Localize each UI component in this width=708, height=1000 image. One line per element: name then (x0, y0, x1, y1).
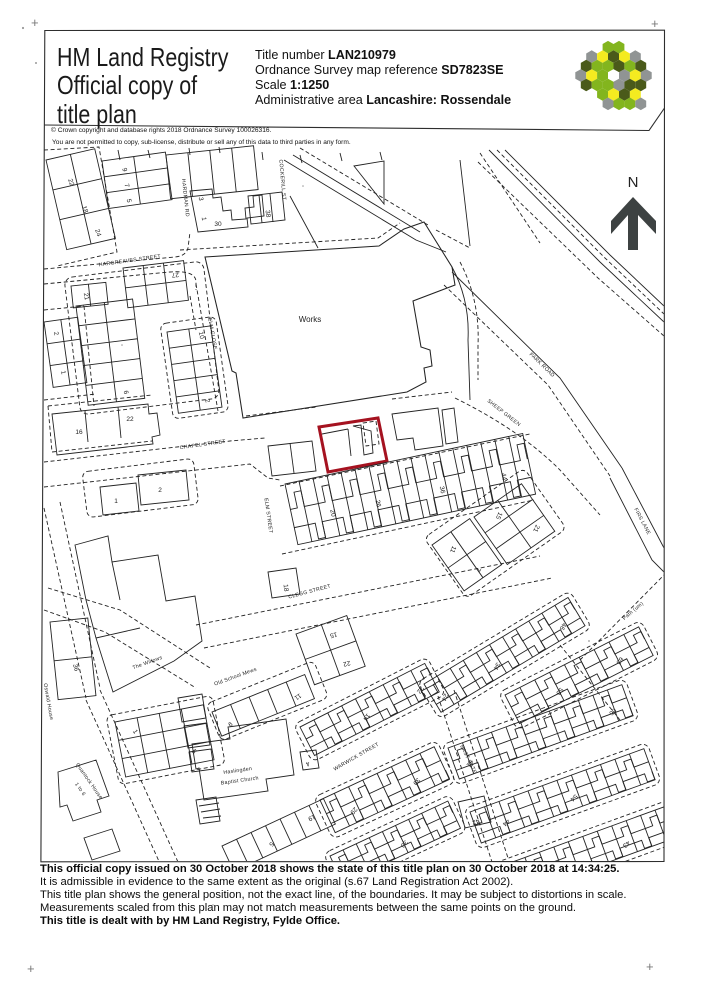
svg-text:21: 21 (82, 292, 90, 301)
svg-text:44: 44 (501, 817, 511, 827)
svg-text:9: 9 (120, 167, 128, 172)
svg-text:COCKERILL ST: COCKERILL ST (277, 159, 287, 201)
svg-text:22: 22 (126, 416, 134, 423)
svg-text:1: 1 (200, 217, 207, 222)
svg-text:Baptist Church: Baptist Church (221, 775, 260, 786)
svg-text:7: 7 (123, 183, 131, 188)
svg-text:1: 1 (59, 370, 67, 375)
svg-text:1: 1 (114, 498, 118, 505)
svg-text:6: 6 (122, 390, 130, 395)
svg-text:34: 34 (491, 661, 501, 671)
svg-text:46: 46 (558, 621, 568, 631)
svg-text:22: 22 (66, 178, 75, 187)
svg-text:1: 1 (131, 729, 139, 736)
svg-text:16: 16 (75, 429, 83, 436)
svg-text:2: 2 (203, 398, 211, 403)
svg-text:24: 24 (93, 228, 102, 237)
svg-text:36: 36 (438, 486, 446, 495)
svg-text:Old School Mews: Old School Mews (214, 667, 258, 688)
svg-text:5: 5 (267, 840, 275, 848)
svg-text:1 to 6: 1 to 6 (73, 782, 86, 798)
svg-text:38: 38 (264, 210, 272, 219)
svg-text:Path (um): Path (um) (622, 601, 645, 622)
svg-text:SHEEP GREEN: SHEEP GREEN (486, 398, 522, 428)
svg-text:3: 3 (197, 197, 204, 202)
svg-text:27: 27 (171, 271, 179, 279)
svg-text:18: 18 (282, 584, 290, 592)
svg-text:CLEGG STREET: CLEGG STREET (288, 583, 332, 600)
svg-text:22: 22 (342, 659, 351, 668)
svg-text:WARWICK STREET: WARWICK STREET (333, 741, 381, 772)
svg-text:FIRS LANE: FIRS LANE (632, 507, 651, 536)
svg-text:2: 2 (158, 487, 162, 494)
svg-text:N: N (628, 174, 639, 191)
svg-text:11: 11 (293, 692, 303, 702)
svg-text:4: 4 (304, 759, 311, 767)
svg-text:5: 5 (125, 198, 133, 203)
svg-text:2: 2 (52, 331, 60, 336)
svg-text:15: 15 (494, 511, 504, 521)
svg-text:39: 39 (411, 776, 421, 786)
svg-text:Works: Works (299, 315, 322, 324)
svg-text:PARK ROAD: PARK ROAD (528, 352, 556, 379)
svg-text:26: 26 (374, 499, 382, 508)
svg-text:ELM STREET: ELM STREET (263, 498, 274, 535)
svg-text:CHAPEL STREET: CHAPEL STREET (179, 439, 226, 451)
svg-text:Oswald House: Oswald House (42, 683, 54, 721)
svg-text:Haslingden: Haslingden (223, 766, 253, 776)
svg-text:24: 24 (440, 692, 450, 702)
svg-text:10: 10 (197, 331, 206, 340)
svg-text:15: 15 (329, 630, 338, 639)
svg-text:11: 11 (448, 545, 457, 554)
svg-text:30: 30 (214, 221, 222, 228)
svg-text:21: 21 (531, 524, 541, 534)
